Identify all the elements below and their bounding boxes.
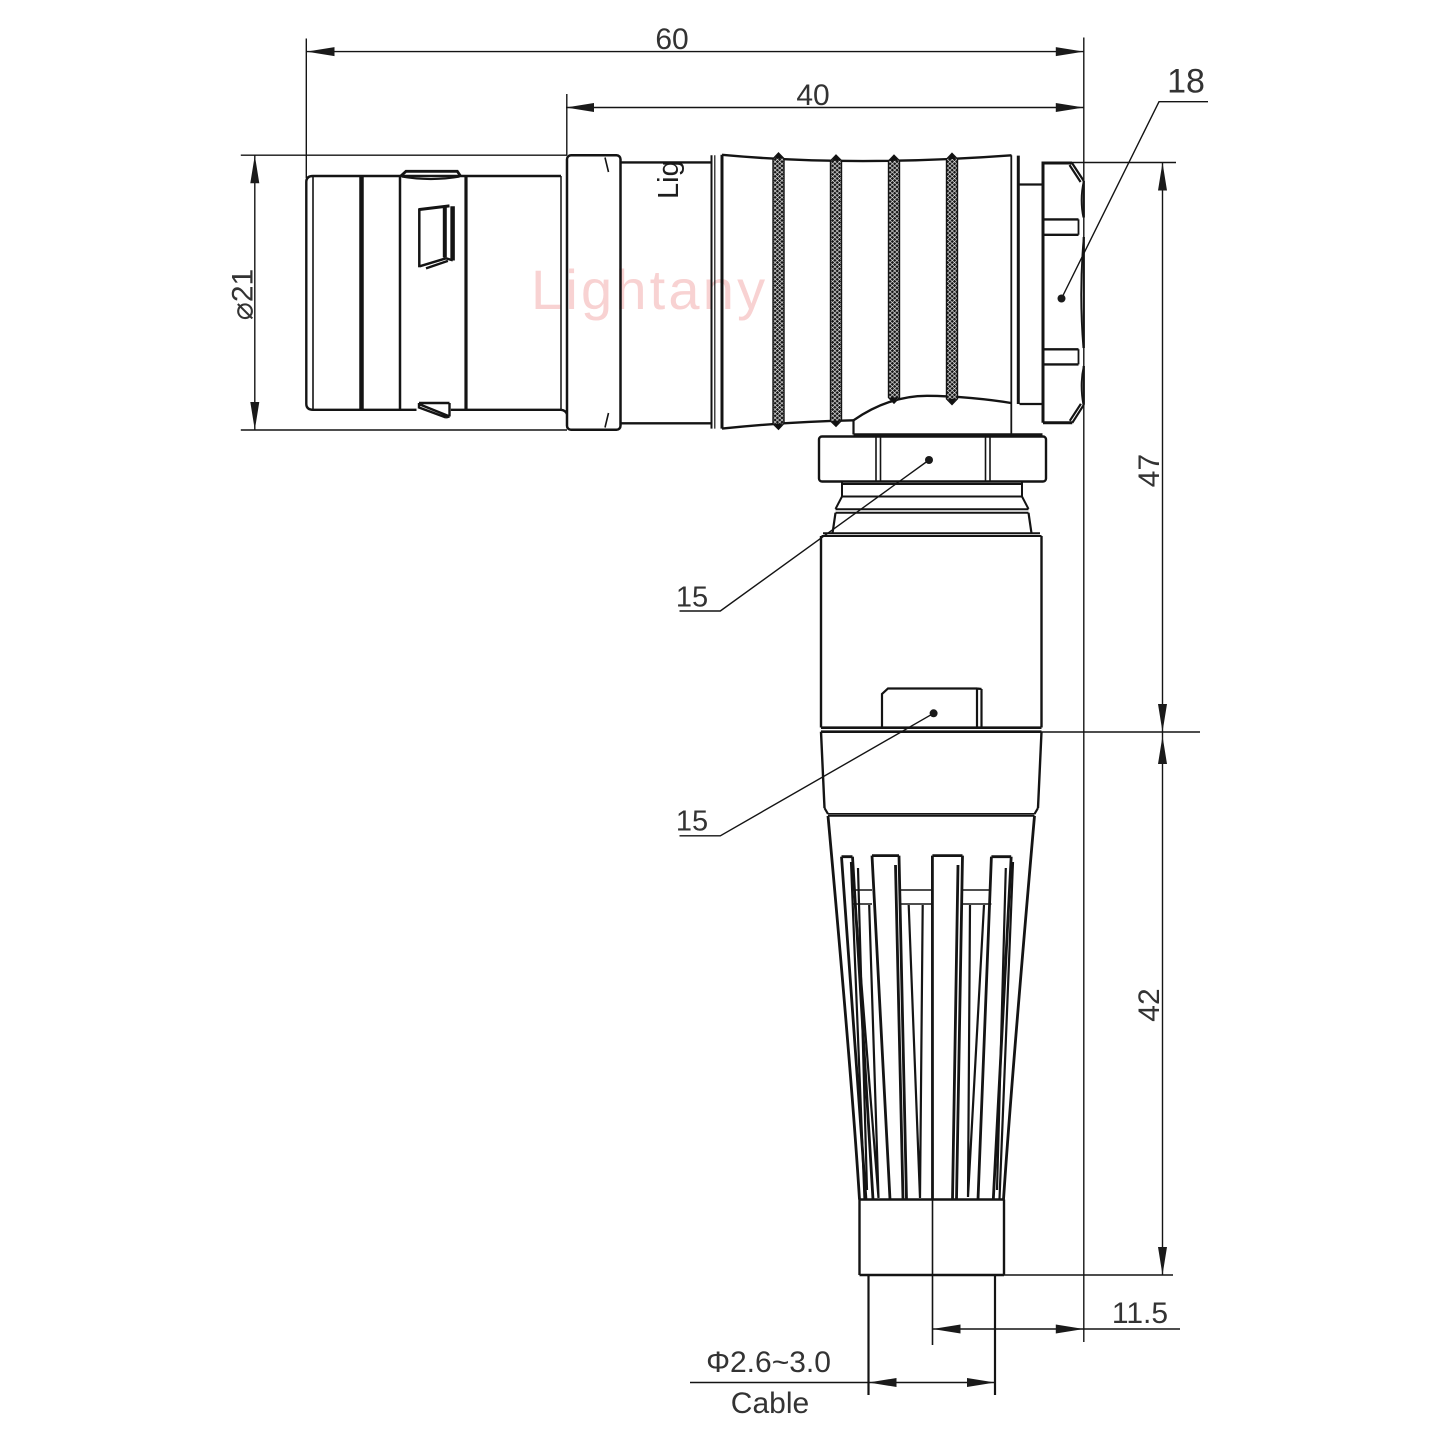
svg-text:⌀21: ⌀21	[227, 269, 260, 320]
svg-text:42: 42	[1133, 988, 1166, 1021]
svg-text:Lig: Lig	[653, 160, 685, 199]
svg-text:15: 15	[676, 806, 708, 838]
svg-text:60: 60	[655, 23, 688, 56]
svg-text:18: 18	[1167, 63, 1205, 101]
svg-text:11.5: 11.5	[1112, 1297, 1168, 1330]
svg-text:47: 47	[1133, 454, 1166, 487]
svg-text:Φ2.6~3.0: Φ2.6~3.0	[706, 1346, 831, 1379]
svg-text:Cable: Cable	[731, 1387, 809, 1420]
svg-text:15: 15	[676, 582, 708, 614]
svg-text:40: 40	[796, 79, 829, 112]
